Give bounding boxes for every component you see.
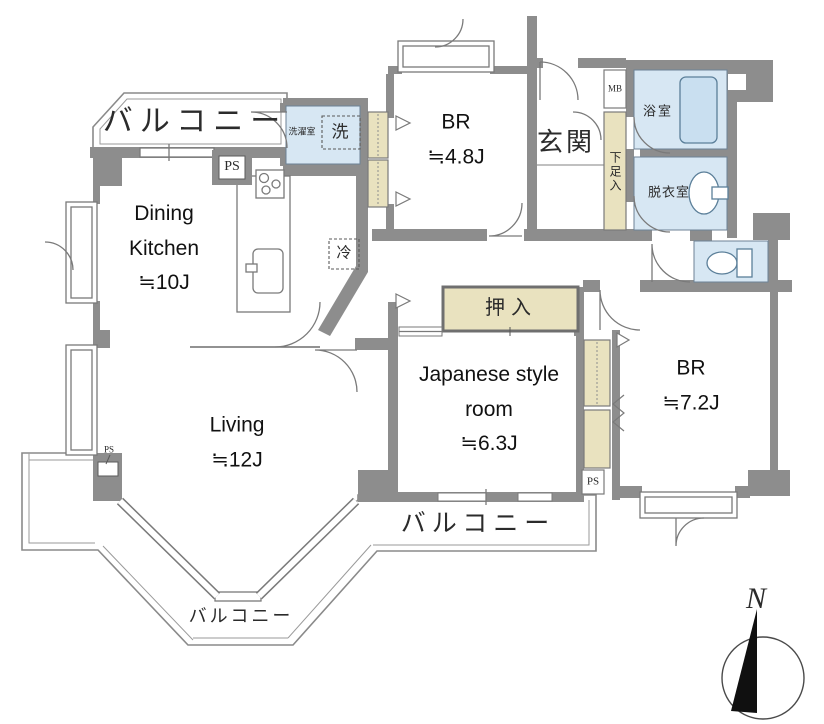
bathtub: [680, 77, 717, 143]
living-label: Living ≒12J: [210, 408, 265, 477]
bay-window-br72-bottom: [640, 492, 737, 518]
compass-needle: [731, 609, 757, 713]
door-entrance: [540, 62, 578, 100]
br72-closet-upper: [584, 340, 610, 406]
door-living: [315, 350, 357, 392]
balcony-bottom-center-label: バルコニー: [401, 512, 556, 537]
door-br72-bay: [676, 518, 704, 546]
door-br48: [489, 203, 522, 236]
laundry-room-label: 洗濯室: [288, 128, 315, 137]
ps-left-label: PS: [104, 446, 114, 455]
window-living-bottom: [215, 592, 261, 601]
dining-kitchen-label: Dining Kitchen ≒10J: [129, 197, 199, 301]
kitchen-faucet: [246, 264, 257, 272]
floor-plan: バルコニー Dining Kitchen ≒10J Living ≒12J BR…: [0, 0, 824, 724]
br72-label: BR ≒7.2J: [662, 351, 719, 420]
wall-notch: [728, 74, 746, 90]
door-br72: [600, 290, 640, 330]
japanese-room-label: Japanese style room ≒6.3J: [419, 358, 559, 462]
toilet-bowl: [707, 252, 737, 274]
window-dk-top: [140, 148, 214, 157]
shoe-cabinet-label: 下足入: [609, 151, 621, 193]
balcony-bottom-left-label: バルコニー: [189, 607, 294, 625]
br48-label: BR ≒4.8J: [427, 105, 484, 174]
door-toilet: [652, 244, 690, 282]
compass-north-label: N: [746, 584, 766, 614]
oshiire-label: 押入: [485, 298, 537, 318]
compass: [722, 609, 804, 719]
window-japanese-1: [438, 493, 486, 501]
kitchen-fixtures: [237, 170, 290, 312]
mb-label: MB: [608, 85, 622, 94]
toilet-tank: [737, 249, 752, 277]
br72-closet-lower: [584, 410, 610, 468]
basin-counter: [712, 187, 728, 199]
bathroom-label: 浴室: [643, 105, 673, 118]
washing-machine-label: 洗: [332, 124, 349, 141]
entrance-label: 玄関: [537, 130, 595, 156]
balcony-top-label: バルコニー: [103, 107, 287, 137]
refrigerator-label: 冷: [336, 247, 351, 262]
ps-top-label: PS: [224, 160, 240, 174]
ps-right-label: PS: [587, 477, 599, 488]
ps-left-slot: [98, 462, 118, 476]
dressing-room-label: 脱衣室: [648, 186, 690, 199]
window-japanese-2: [518, 493, 552, 501]
